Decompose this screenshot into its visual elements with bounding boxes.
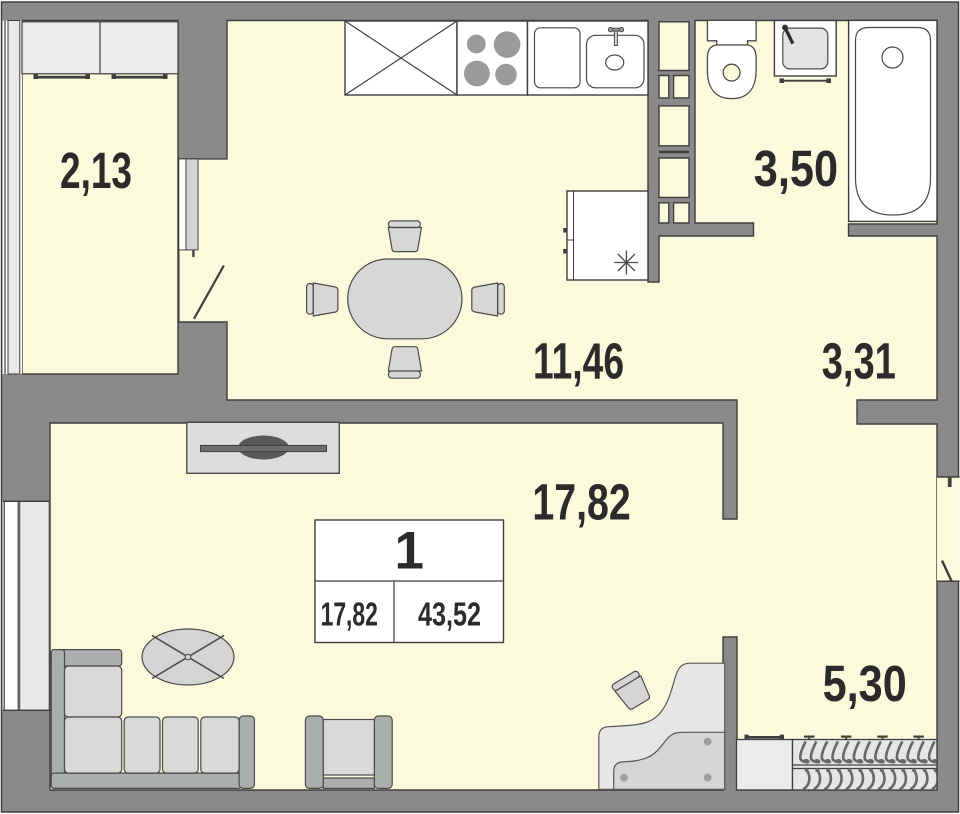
svg-text:3,31: 3,31 xyxy=(822,332,896,389)
svg-text:43,52: 43,52 xyxy=(418,596,481,633)
svg-text:17,82: 17,82 xyxy=(321,596,378,633)
svg-text:17,82: 17,82 xyxy=(532,474,630,531)
svg-text:2,13: 2,13 xyxy=(60,142,132,199)
svg-text:5,30: 5,30 xyxy=(823,655,907,712)
svg-text:1: 1 xyxy=(395,521,424,580)
svg-text:11,46: 11,46 xyxy=(533,332,624,389)
svg-text:3,50: 3,50 xyxy=(754,140,838,197)
